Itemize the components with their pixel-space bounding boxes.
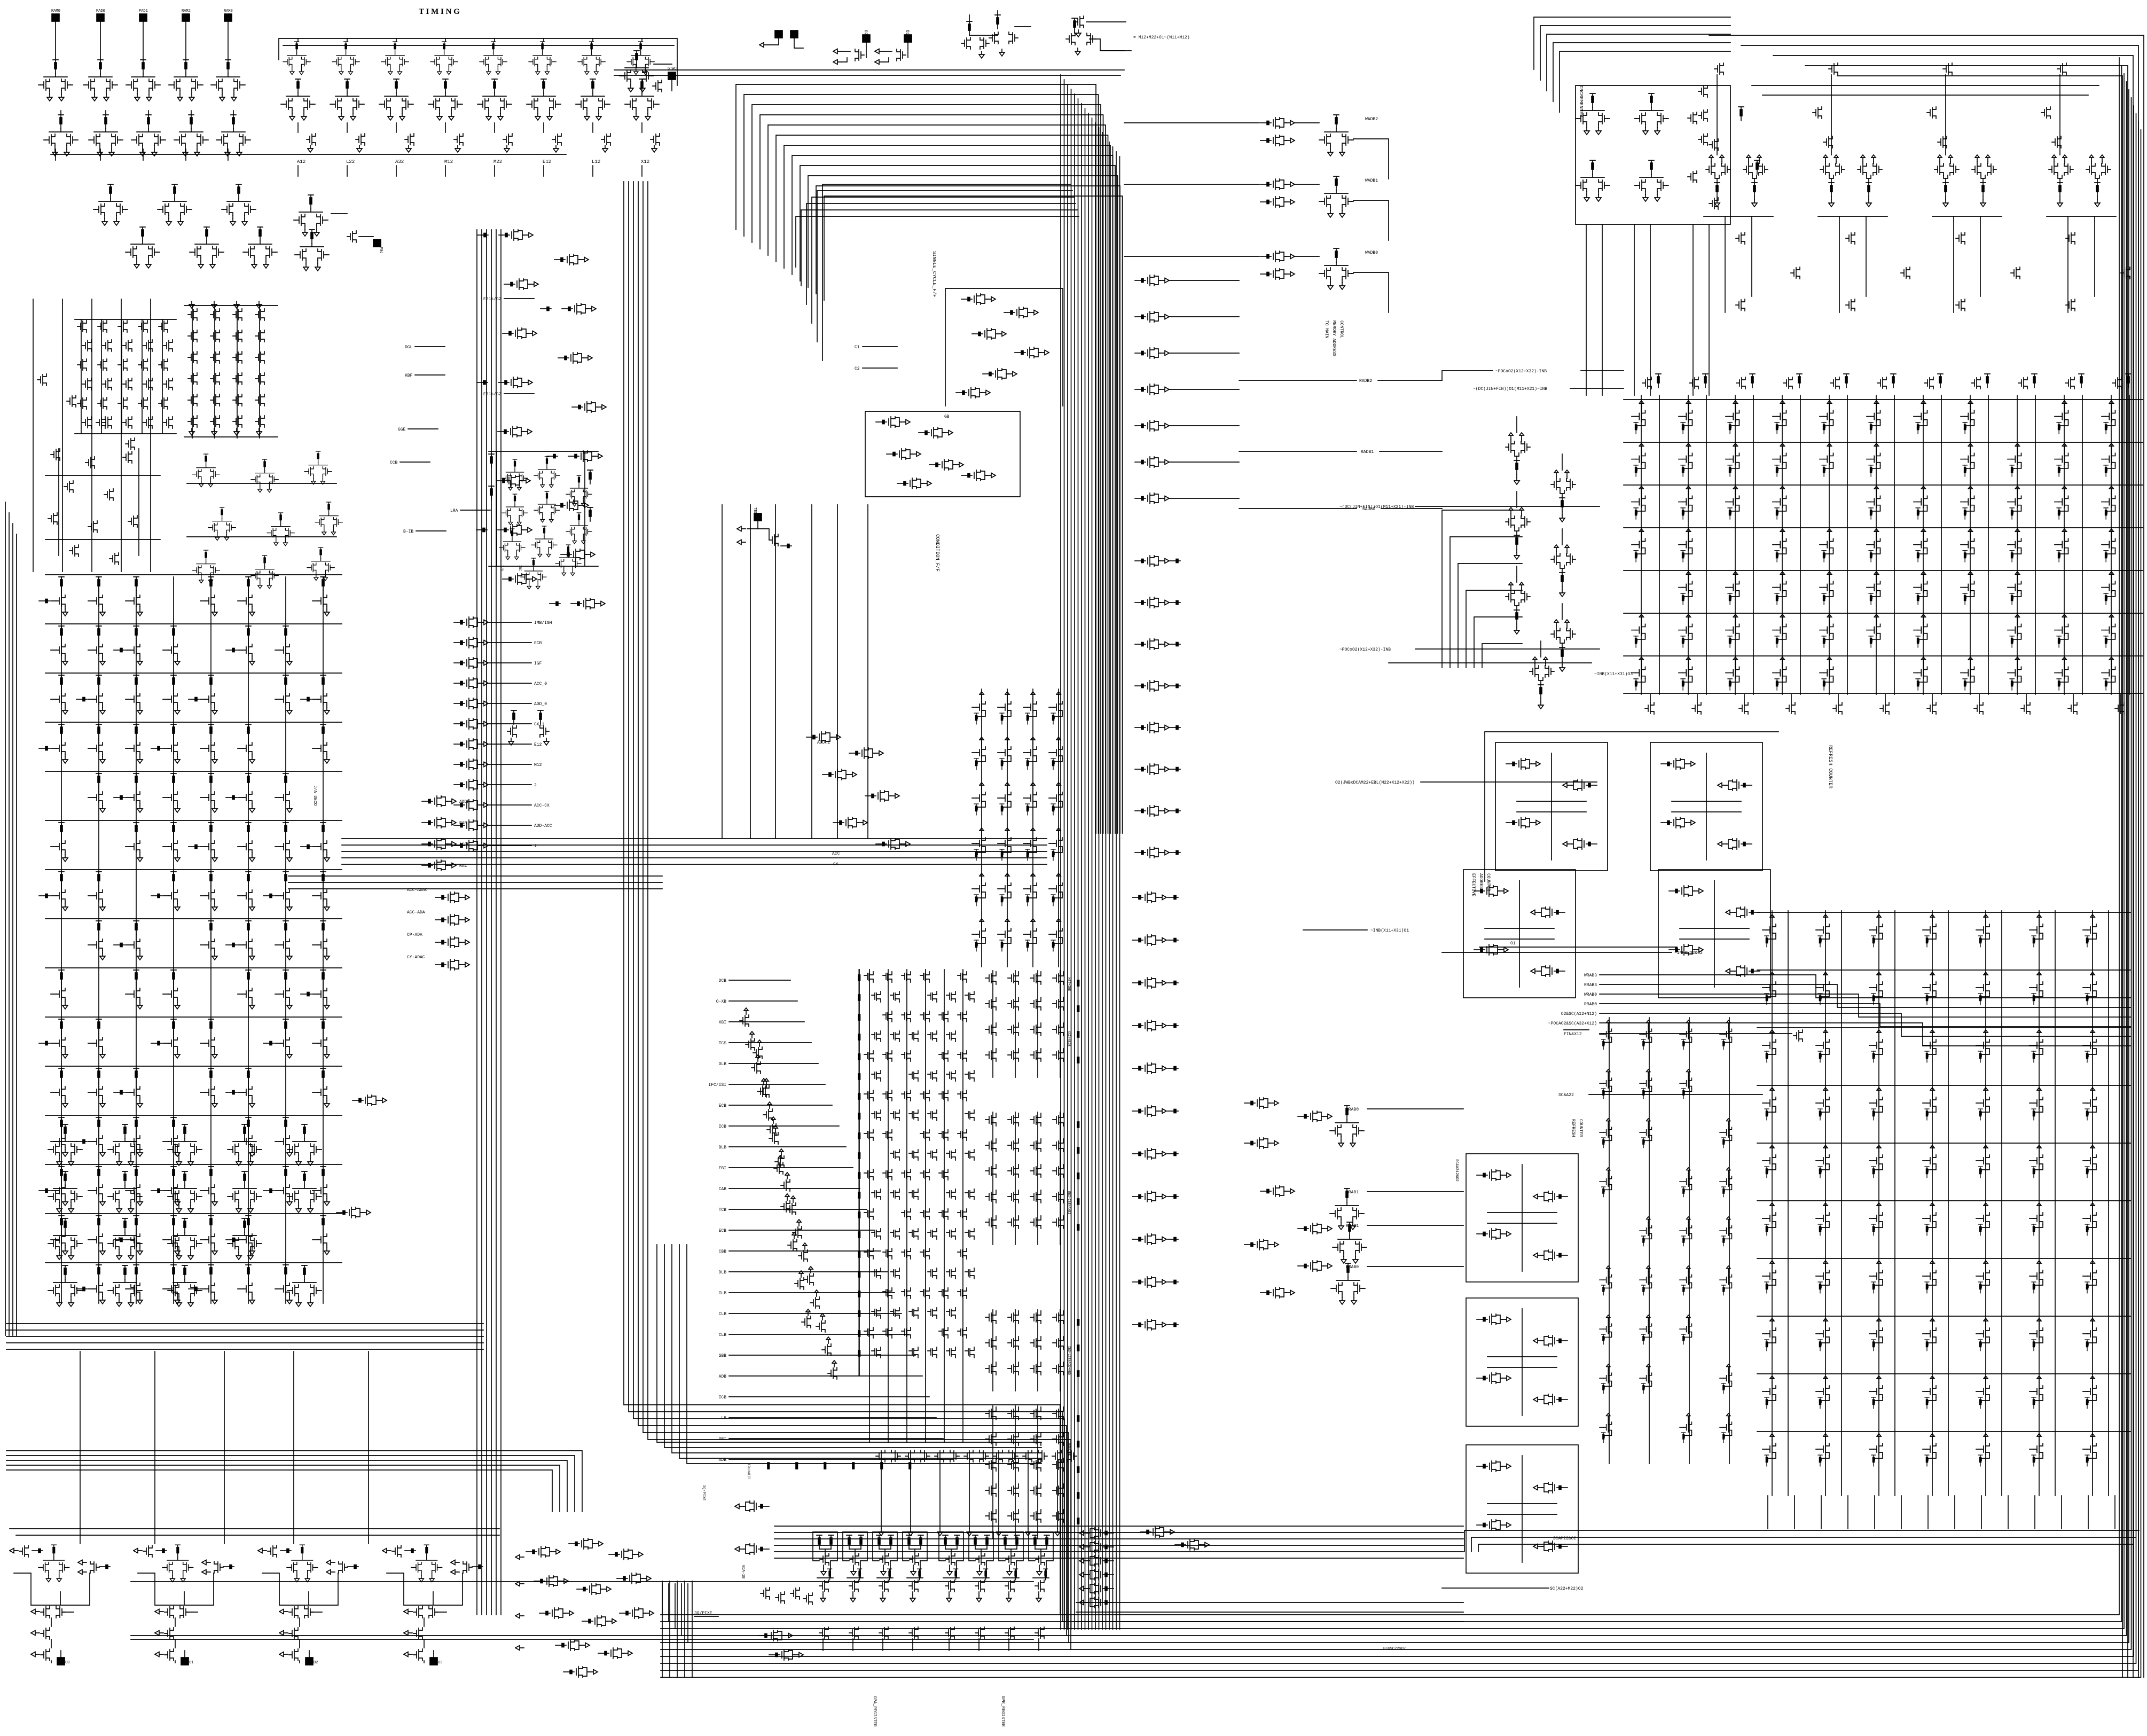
svg-text:XBI: XBI [719,1020,726,1025]
svg-text:A32: A32 [395,159,404,165]
svg-text:SBB: SBB [719,1354,727,1358]
svg-text:X12: X12 [641,159,649,165]
svg-text:WADB1: WADB1 [1365,178,1378,183]
svg-text:2: 2 [534,783,537,788]
svg-text:TCB: TCB [719,1208,727,1213]
svg-text:GB: GB [944,415,950,419]
svg-text:ADB: ADB [719,1374,727,1379]
svg-text:SC&A312&O2: SC&A312&O2 [1454,1159,1459,1182]
svg-text:O1: O1 [905,30,910,35]
svg-text:TCS: TCS [719,1041,727,1046]
svg-text:ICB: ICB [719,1395,727,1400]
svg-text:RAM2: RAM2 [182,9,191,13]
svg-text:SBI: SBI [719,1437,726,1442]
svg-text:SINGLE_CYCLE_F/F: SINGLE_CYCLE_F/F [931,251,937,297]
svg-text:ADDR: ADDR [459,800,469,804]
svg-text:IMB/IGH: IMB/IGH [534,621,552,625]
svg-text:ADD_1: ADD_1 [817,740,830,745]
svg-text:= M12+M22+O1~(M11+M12): = M12+M22+O1~(M11+M12) [1133,35,1190,40]
svg-text:BLB: BLB [719,1145,727,1150]
svg-text:L12: L12 [592,159,600,165]
svg-text:WRAB0: WRAB0 [1584,992,1597,997]
svg-text:EBI~IBE4AXBI: EBI~IBE4AXBI [1067,1191,1071,1214]
svg-text:D3: D3 [438,1661,442,1665]
svg-text:ECB: ECB [719,1229,727,1233]
svg-text:ILB: ILB [719,1291,727,1296]
svg-text:TO MAIN: TO MAIN [1324,320,1329,339]
svg-text:M12: M12 [534,763,542,768]
svg-text:WRAB3: WRAB3 [1584,973,1597,978]
svg-text:DCB: DCB [719,979,727,983]
svg-text:CCB: CCB [390,460,398,465]
svg-text:PAD1: PAD1 [139,9,148,13]
svg-text:REFRESH COUNTER: REFRESH COUNTER [1828,745,1833,789]
svg-text:DGL: DGL [405,345,413,350]
svg-text:LRA: LRA [450,509,458,513]
svg-text:M12: M12 [444,159,453,165]
svg-text:DLB: DLB [719,1270,727,1275]
svg-text:T I M I N G: T I M I N G [419,7,460,16]
svg-text:FIN&X12: FIN&X12 [1564,1032,1582,1037]
svg-text:M22: M22 [493,159,502,165]
svg-text:P0d: P0d [379,247,383,254]
svg-text:IGF: IGF [534,661,542,666]
svg-text:RRAB1: RRAB1 [1346,1224,1359,1229]
svg-text:GGE: GGE [398,427,406,432]
svg-text:E31s/G2: E31s/G2 [483,392,502,397]
svg-text:O1: O1 [1510,941,1516,946]
svg-text:ICB: ICB [719,1124,727,1129]
svg-text:ACC-ADA: ACC-ADA [407,910,425,915]
svg-text:E12: E12 [543,159,551,165]
svg-text:RADB1: RADB1 [1361,450,1374,455]
svg-text:INC: INC [518,565,522,571]
svg-text:CLB: CLB [719,1333,727,1338]
svg-text:REFRESH: REFRESH [1571,1119,1576,1137]
svg-text:E21s/G2: E21s/G2 [483,297,502,302]
svg-text:~(DC(JIN+FIN))O1(M11+X21)~INB: ~(DC(JIN+FIN))O1(M11+X21)~INB [1473,387,1547,392]
svg-text:RRAB0: RRAB0 [1584,1002,1597,1007]
svg-text:L22: L22 [346,159,355,165]
svg-text:3Q/PIXE: 3Q/PIXE [701,1485,706,1500]
svg-text:I/O: I/O [500,565,504,571]
svg-text:SC&A22: SC&A22 [1558,1093,1574,1098]
svg-text:ACC_0: ACC_0 [534,682,547,686]
svg-text:WADB2: WADB2 [1365,117,1378,122]
svg-text:RRAB3: RRAB3 [1584,983,1597,988]
svg-text:E12: E12 [534,742,542,747]
svg-text:C2: C2 [855,366,860,371]
svg-text:ECB: ECB [719,1104,727,1108]
svg-text:INCREMENTER: INCREMENTER [1578,85,1584,118]
svg-text:TRU/WRIT: TRU/WRIT [747,1464,750,1479]
svg-text:~POCAO2&SC(A32+X12): ~POCAO2&SC(A32+X12) [1548,1021,1597,1026]
svg-text:SC(A22+M22)O2: SC(A22+M22)O2 [1550,1586,1584,1591]
svg-text:RAM0: RAM0 [51,9,60,13]
svg-text:IFC/ISI: IFC/ISI [708,1083,726,1088]
svg-text:EFFECTIVE: EFFECTIVE [1471,873,1476,896]
svg-text:IBD~13E4ACD+HBD: IBD~13E4ACD+HBD [1067,1346,1071,1375]
svg-text:~POCxO2(X12+X32)-INB: ~POCxO2(X12+X32)-INB [1339,647,1391,652]
svg-text:~(DC(JIN+FIN))O1(M11+X21)-INB: ~(DC(JIN+FIN))O1(M11+X21)-INB [1339,505,1414,510]
svg-text:CP-ADA: CP-ADA [407,933,422,937]
svg-text:CAB: CAB [719,1187,727,1192]
svg-text:NRAB0: NRAB0 [1346,1107,1359,1112]
svg-text:GPR_REGISTER: GPR_REGISTER [1000,1696,1005,1727]
svg-text:~INH&X32&O2: ~INH&X32&O2 [1674,951,1703,956]
svg-text:MEMORY ADDRESS: MEMORY ADDRESS [1331,320,1336,356]
svg-text:O-XB: O-XB [716,999,726,1004]
svg-text:O2&SC(A12+N12): O2&SC(A12+N12) [1561,1012,1597,1016]
svg-text:HBT+IBE: HBT+IBE [1067,978,1071,991]
svg-text:LB: LB [721,1416,726,1421]
svg-text:KBF: KBF [405,373,413,378]
svg-text:JUB4JBE: JUB4JBE [1067,1442,1071,1456]
svg-text:CX_1: CX_1 [534,722,544,727]
svg-text:ADD_0: ADD_0 [534,702,547,707]
svg-text:CY-ADAC: CY-ADAC [407,955,425,960]
svg-text:ACC-ADAC: ACC-ADAC [407,888,428,893]
svg-text:CONDITION_F/F: CONDITION_F/F [935,534,940,572]
svg-text:D2: D2 [314,1661,318,1665]
svg-text:XXI#4B2B: XXI#4B2B [1067,1031,1071,1046]
svg-text:RAM3: RAM3 [224,9,233,13]
svg-text:RAR: RAR [459,821,467,826]
svg-text:RADB2: RADB2 [1359,379,1372,384]
svg-text:ACC-CX: ACC-CX [534,803,550,808]
svg-text:CONTROL: CONTROL [1339,320,1344,339]
svg-text:ADB: ADB [719,1458,727,1463]
svg-text:EC&SC22&O2: EC&SC22&O2 [1383,1647,1406,1651]
svg-text:C1: C1 [855,345,860,350]
svg-text:ACC: ACC [832,851,840,856]
svg-text:COUNTER: COUNTER [1578,1119,1583,1137]
svg-text:B-IB: B-IB [403,529,413,534]
svg-text:D0: D0 [65,1661,69,1665]
svg-text:WADB0: WADB0 [1365,251,1378,255]
svg-text:CLB: CLB [719,1312,727,1317]
svg-text:DLB: DLB [719,1062,727,1067]
svg-text:ECB: ECB [534,641,542,646]
svg-text:O2(JWBxDCAM22+EBL(M22+X12+X22): O2(JWBxDCAM22+EBL(M22+X12+X22)) [1335,780,1415,785]
svg-text:~INB(X11+X31)O1: ~INB(X11+X31)O1 [1370,928,1409,933]
svg-text:FBI: FBI [719,1166,726,1171]
svg-text:PAD0: PAD0 [96,9,105,13]
svg-text:NRAB1: NRAB1 [1346,1190,1359,1195]
svg-text:D1: D1 [189,1661,193,1665]
svg-text:~INB(X11+X31)O3: ~INB(X11+X31)O3 [1594,672,1633,677]
svg-text:ADD-ACC: ADD-ACC [534,824,552,828]
svg-text:RRAB0: RRAB0 [1346,1265,1359,1270]
svg-text:A12: A12 [297,159,305,165]
svg-text:CBB: CBB [719,1249,727,1254]
svg-text:GDA-1B: GDA-1B [741,1565,745,1578]
svg-text:J/A DECO: J/A DECO [312,785,317,806]
svg-text:GPA_REGISTER: GPA_REGISTER [872,1696,877,1727]
svg-text:O2: O2 [863,30,868,35]
svg-text:~POCxO2(X12+X32)-INB: ~POCxO2(X12+X32)-INB [1495,369,1547,374]
svg-text:TEST: TEST [753,507,757,517]
